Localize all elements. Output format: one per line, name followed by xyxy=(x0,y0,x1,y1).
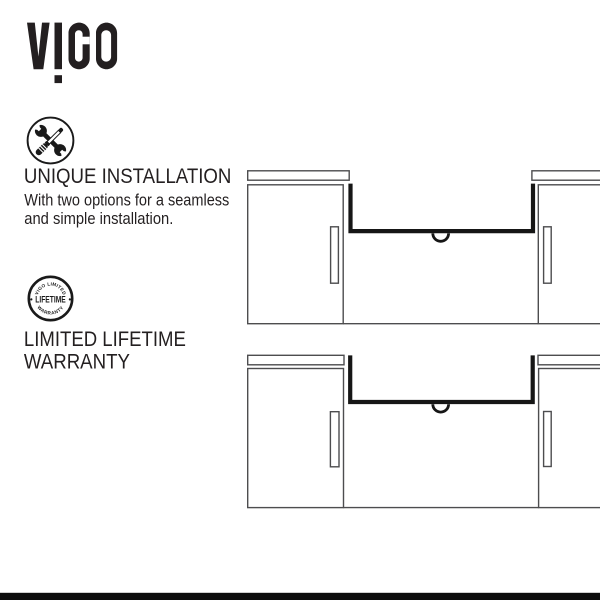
svg-text:and simple installation.: and simple installation. xyxy=(24,210,173,228)
svg-text:With two options for a seamles: With two options for a seamless xyxy=(24,192,229,210)
svg-text:UNIQUE INSTALLATION: UNIQUE INSTALLATION xyxy=(24,164,232,188)
svg-text:WARRANTY: WARRANTY xyxy=(24,350,130,374)
svg-text:LIMITED LIFETIME: LIMITED LIFETIME xyxy=(24,327,186,351)
svg-text:LIFETIME: LIFETIME xyxy=(35,294,66,304)
